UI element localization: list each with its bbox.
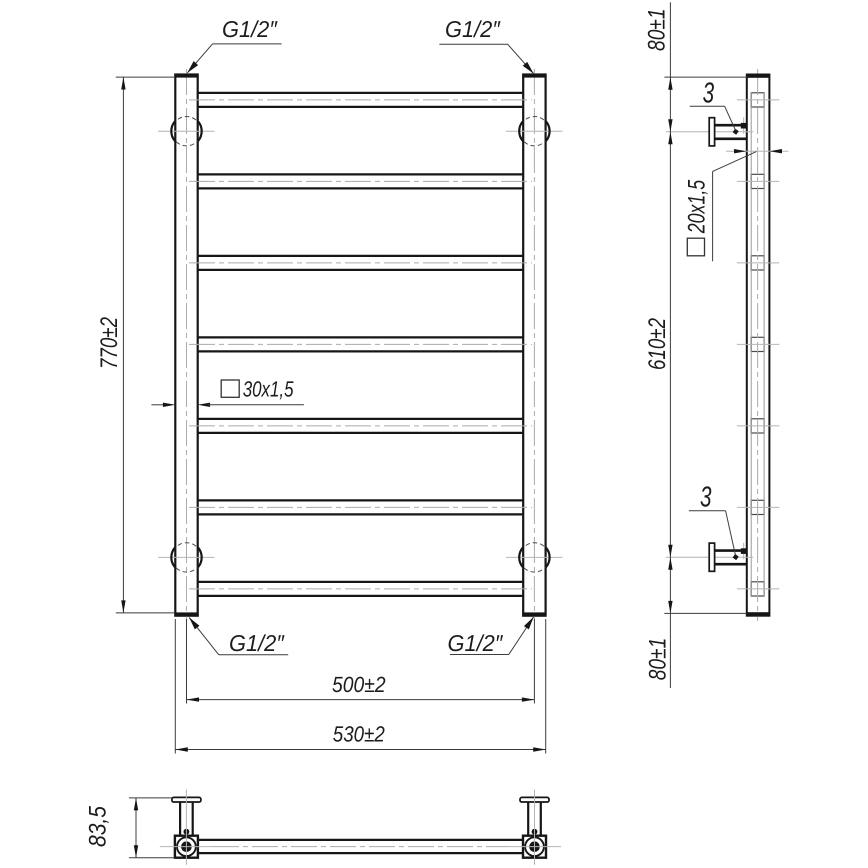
svg-text:3: 3 — [700, 481, 712, 513]
svg-text:G1/2″: G1/2″ — [445, 16, 501, 42]
svg-text:80±1: 80±1 — [644, 638, 671, 681]
svg-text:83,5: 83,5 — [85, 805, 112, 847]
svg-text:610±2: 610±2 — [644, 318, 671, 370]
svg-text:20x1,5: 20x1,5 — [684, 179, 711, 234]
svg-text:G1/2″: G1/2″ — [222, 16, 278, 42]
svg-text:530±2: 530±2 — [333, 721, 385, 746]
svg-text:3: 3 — [703, 78, 715, 110]
svg-text:770±2: 770±2 — [96, 317, 123, 369]
svg-text:80±1: 80±1 — [644, 8, 671, 51]
svg-text:30x1,5: 30x1,5 — [243, 377, 294, 402]
svg-text:500±2: 500±2 — [332, 672, 386, 697]
svg-text:G1/2″: G1/2″ — [448, 630, 504, 656]
svg-text:G1/2″: G1/2″ — [229, 630, 285, 656]
